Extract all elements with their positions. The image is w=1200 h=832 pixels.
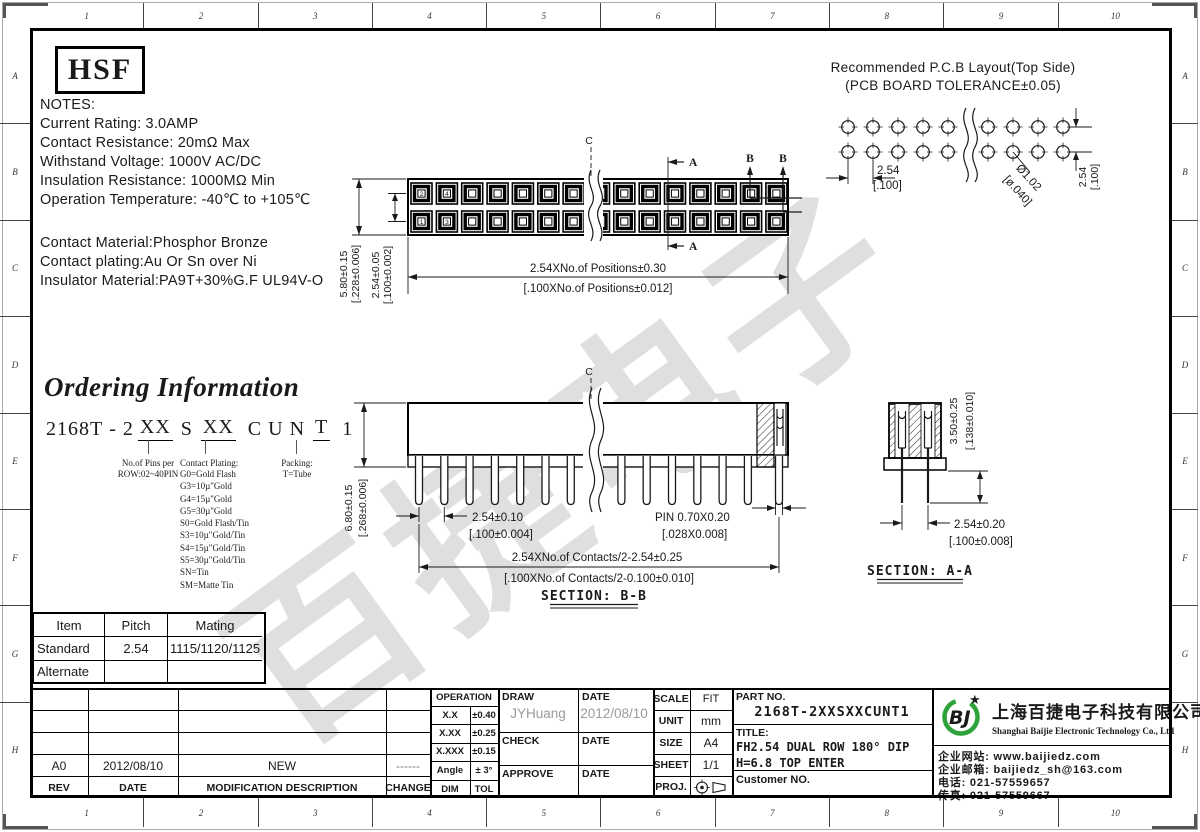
dim-pcb-row: 2.54 bbox=[1077, 167, 1089, 188]
approve-label: APPROVE bbox=[502, 768, 553, 780]
tol-line bbox=[432, 743, 498, 744]
grid-row-label: E bbox=[1172, 414, 1198, 510]
mating-cell: 1115/1120/1125 bbox=[167, 636, 262, 660]
grid-col-label: 4 bbox=[373, 3, 487, 28]
grid-labels-top: 12345678910 bbox=[30, 3, 1172, 28]
grid-col-label: 4 bbox=[373, 798, 487, 827]
tol-line bbox=[432, 761, 498, 762]
size-value: A4 bbox=[704, 736, 719, 750]
dim-bb-pin-inch: [.028X0.008] bbox=[662, 529, 727, 541]
grid-col-label: 7 bbox=[716, 3, 830, 28]
rev-line bbox=[386, 688, 387, 798]
rev-line bbox=[178, 688, 179, 798]
title-label: TITLE: bbox=[736, 727, 769, 739]
projection-symbol-icon bbox=[694, 779, 728, 796]
rev-line bbox=[30, 776, 430, 777]
rev-entry-rev: A0 bbox=[52, 759, 67, 773]
tol-line bbox=[432, 724, 498, 725]
grid-col-label: 8 bbox=[830, 3, 944, 28]
rev-header: DATE bbox=[119, 782, 147, 794]
grid-col-label: 3 bbox=[259, 3, 373, 28]
section-b-label: B bbox=[779, 153, 787, 165]
tol-cell: Angle bbox=[437, 765, 463, 776]
grid-row-label: E bbox=[0, 414, 30, 510]
grid-labels-left: ABCDEFGH bbox=[0, 28, 30, 798]
grid-col-label: 10 bbox=[1059, 798, 1172, 827]
sheet-label: SHEET bbox=[653, 759, 688, 771]
pin-number: 4 bbox=[445, 191, 449, 198]
part-seg: N bbox=[290, 418, 305, 441]
dim-bb-height-inch: [.268±0.006] bbox=[357, 479, 369, 537]
info-line bbox=[653, 732, 732, 733]
grid-row-label: G bbox=[1172, 606, 1198, 702]
titleblock-line bbox=[653, 688, 655, 798]
part-seg: - bbox=[109, 418, 117, 441]
draw-date-value: 2012/08/10 bbox=[580, 706, 648, 721]
tol-cell: X.X bbox=[442, 710, 457, 721]
grid-col-label: 3 bbox=[259, 798, 373, 827]
notes-block: NOTES:Current Rating: 3.0AMPContact Resi… bbox=[40, 96, 310, 210]
rev-line bbox=[88, 688, 89, 798]
grid-col-label: 2 bbox=[144, 3, 258, 28]
dim-bb-span: 2.54XNo.of Contacts/2-2.54±0.25 bbox=[512, 552, 683, 564]
note-line: Insulation Resistance: 1000MΩ Min bbox=[40, 172, 310, 191]
dim-pcb-pitch: 2.54 bbox=[877, 165, 900, 177]
grid-col-label: 6 bbox=[601, 3, 715, 28]
section-b-label: B bbox=[746, 153, 754, 165]
packing-option: T=Tube bbox=[268, 469, 326, 480]
centerline-label: C bbox=[585, 135, 593, 147]
tol-cell: X.XX bbox=[439, 728, 461, 739]
plating-option: S5=30µ"Gold/Tin bbox=[180, 555, 249, 566]
rev-entry-desc: NEW bbox=[268, 759, 296, 773]
section-a-label: A bbox=[689, 241, 698, 253]
pcb-layout-title: Recommended P.C.B Layout(Top Side) bbox=[831, 60, 1076, 75]
dim-pcb-row-inch: [.100] bbox=[1089, 164, 1101, 190]
rev-line bbox=[30, 754, 430, 755]
grid-col-label: 9 bbox=[944, 798, 1058, 827]
material-line: Contact plating:Au Or Sn over Ni bbox=[40, 253, 323, 272]
dim-bb-height: 6.80±0.15 bbox=[343, 485, 355, 532]
plating-option: G5=30µ"Gold bbox=[180, 506, 249, 517]
appr-line bbox=[498, 765, 653, 766]
pcb-layout-subtitle: (PCB BOARD TOLERANCE±0.05) bbox=[845, 78, 1061, 93]
title-line2: H=6.8 TOP ENTER bbox=[736, 756, 844, 770]
plating-option: S4=15µ"Gold/Tin bbox=[180, 543, 249, 554]
part-seg: 2168T bbox=[46, 418, 103, 441]
titleblock-line bbox=[732, 688, 734, 798]
section-a-label: A bbox=[689, 157, 698, 169]
info-line bbox=[653, 710, 732, 711]
note-line: NOTES: bbox=[40, 96, 310, 115]
grid-col-label: 10 bbox=[1059, 3, 1172, 28]
plating-option: S3=10µ"Gold/Tin bbox=[180, 530, 249, 541]
grid-col-label: 5 bbox=[487, 3, 601, 28]
grid-col-label: 5 bbox=[487, 798, 601, 827]
mating-header: Mating bbox=[167, 614, 262, 636]
section-aa-label: SECTION: A-A bbox=[867, 564, 973, 579]
dim-pcb-pitch-inch: [.100] bbox=[873, 180, 902, 192]
grid-row-label: H bbox=[0, 703, 30, 798]
rev-entry-date: 2012/08/10 bbox=[103, 759, 163, 773]
customer-no-label: Customer NO. bbox=[736, 774, 810, 786]
pin-number: 2 bbox=[420, 191, 424, 198]
company-line bbox=[932, 745, 1172, 746]
dim-length: 2.54XNo.of Positions±0.30 bbox=[530, 263, 666, 275]
callout-tick bbox=[296, 440, 297, 454]
plating-option: SN=Tin bbox=[180, 567, 249, 578]
plating-option: G0=Gold Flash bbox=[180, 469, 249, 480]
part-no-value: 2168T-2XXSXXCUNT1 bbox=[754, 704, 909, 720]
dim-length-inch: [.100XNo.of Positions±0.012] bbox=[524, 283, 673, 295]
dim-aa-height-inch: [.138±0.010] bbox=[964, 392, 976, 450]
grid-row-label: A bbox=[1172, 28, 1198, 124]
title-line1: FH2.54 DUAL ROW 180° DIP bbox=[736, 740, 909, 754]
ordering-title: Ordering Information bbox=[44, 372, 299, 403]
part-line bbox=[732, 724, 932, 725]
tol-cell: ±0.15 bbox=[472, 746, 496, 757]
tol-cell: DIM bbox=[441, 784, 458, 795]
section-bb-label: SECTION: B-B bbox=[541, 589, 647, 604]
note-line: Current Rating: 3.0AMP bbox=[40, 115, 310, 134]
top-view-drawing: 2 4 1 3 C A A B B 5.80±0.15 [.228±0.006]… bbox=[338, 128, 820, 304]
centerline-label: C bbox=[585, 366, 593, 378]
grid-labels-bottom: 12345678910 bbox=[30, 798, 1172, 827]
tol-cell: X.XXX bbox=[436, 746, 464, 757]
grid-col-label: 1 bbox=[30, 798, 144, 827]
dim-aa-height: 3.50±0.25 bbox=[948, 398, 960, 445]
mating-cell: Alternate bbox=[34, 660, 104, 682]
grid-row-label: C bbox=[1172, 221, 1198, 317]
draw-signature: JYHuang bbox=[510, 706, 566, 721]
rev-header: REV bbox=[48, 782, 70, 794]
mating-table: Item Pitch Mating Standard 2.54 1115/112… bbox=[32, 612, 266, 684]
hsf-logo: HSF bbox=[55, 46, 145, 94]
tol-title: OPERATION bbox=[436, 692, 492, 703]
mating-cell: 2.54 bbox=[104, 636, 167, 660]
sheet-value: 1/1 bbox=[703, 758, 720, 772]
appr-line bbox=[578, 688, 579, 798]
company-name-cn: 上海百捷电子科技有限公司 bbox=[992, 698, 1200, 723]
draw-label: DRAW bbox=[502, 691, 534, 703]
plating-title: Contact Plating: bbox=[180, 458, 249, 469]
rev-entry-change: ------ bbox=[396, 759, 420, 773]
grid-col-label: 7 bbox=[716, 798, 830, 827]
pin-number: 1 bbox=[420, 219, 424, 226]
appr-line bbox=[498, 732, 653, 733]
size-label: SIZE bbox=[659, 737, 682, 749]
dim-aa-pitch-inch: [.100±0.008] bbox=[949, 536, 1013, 548]
rev-header: CHANGE bbox=[385, 782, 431, 794]
pcb-layout-drawing: 2.54 [.100] Ø1.02 [ø.040] 2.54 [.100] bbox=[793, 100, 1123, 210]
titleblock-line bbox=[932, 688, 934, 798]
section-bb-drawing: C 6.80±0.15 [.268±0.006] 2.54±0.10 [.100… bbox=[336, 356, 820, 614]
grid-row-label: H bbox=[1172, 703, 1198, 798]
tol-line bbox=[470, 706, 471, 798]
grid-row-label: A bbox=[0, 28, 30, 124]
tol-cell: ± 3° bbox=[476, 765, 493, 776]
tol-cell: ±0.25 bbox=[472, 728, 496, 739]
part-no-label: PART NO. bbox=[736, 691, 785, 703]
plating-callout: Contact Plating: G0=Gold FlashG3=10µ"Gol… bbox=[180, 458, 249, 592]
packing-callout: Packing: T=Tube bbox=[268, 458, 326, 480]
plating-option: S0=Gold Flash/Tin bbox=[180, 518, 249, 529]
note-line: Operation Temperature: -40℃ to +105℃ bbox=[40, 191, 310, 210]
tol-line bbox=[432, 780, 498, 781]
plating-option: SM=Matte Tin bbox=[180, 580, 249, 591]
unit-value: mm bbox=[701, 714, 721, 728]
part-seg-packing: T bbox=[313, 416, 330, 441]
dim-aa-pitch: 2.54±0.20 bbox=[954, 519, 1005, 531]
part-seg: U bbox=[268, 418, 283, 441]
date-label: DATE bbox=[582, 768, 610, 780]
mating-cell bbox=[104, 660, 167, 682]
note-line: Withstand Voltage: 1000V AC/DC bbox=[40, 153, 310, 172]
date-label: DATE bbox=[582, 691, 610, 703]
grid-col-label: 9 bbox=[944, 3, 1058, 28]
part-seg: 2 bbox=[123, 418, 134, 441]
material-line: Contact Material:Phosphor Bronze bbox=[40, 234, 323, 253]
titleblock-line bbox=[30, 688, 1172, 690]
rev-line bbox=[30, 732, 430, 733]
mating-header: Item bbox=[34, 614, 104, 636]
grid-row-label: F bbox=[1172, 510, 1198, 606]
rev-line bbox=[30, 710, 430, 711]
datasheet-page: 百捷电子 12345678910 12345678910 ABCDEFGH AB… bbox=[0, 0, 1200, 832]
grid-col-label: 6 bbox=[601, 798, 715, 827]
part-seg: C bbox=[248, 418, 262, 441]
plating-option: G3=10µ"Gold bbox=[180, 481, 249, 492]
scale-value: FIT bbox=[703, 693, 720, 705]
scale-label: SCALE bbox=[653, 693, 689, 705]
material-line: Insulator Material:PA9T+30%G.F UL94V-O bbox=[40, 272, 323, 291]
part-seg-plating: XX bbox=[201, 416, 236, 441]
ordering-part-number: 2168T - 2 XX S XX C U N T 1 bbox=[46, 416, 353, 441]
unit-label: UNIT bbox=[659, 715, 684, 727]
callout-tick bbox=[205, 440, 206, 454]
company-name-en: Shanghai Baijie Electronic Technology Co… bbox=[992, 726, 1174, 736]
part-seg: S bbox=[181, 418, 193, 441]
dim-bb-span-inch: [.100XNo.of Contacts/2-0.100±0.010] bbox=[504, 573, 694, 585]
tol-line bbox=[432, 706, 498, 707]
mating-cell: Standard bbox=[34, 636, 104, 660]
dim-height-inch: [.228±0.006] bbox=[350, 245, 362, 303]
dim-row-pitch-inch: [.100±0.002] bbox=[382, 246, 394, 304]
company-logo-icon: BJ ★ bbox=[936, 690, 990, 742]
date-label: DATE bbox=[582, 735, 610, 747]
grid-row-label: D bbox=[1172, 317, 1198, 413]
part-seg-pins: XX bbox=[138, 416, 173, 441]
grid-row-label: B bbox=[0, 124, 30, 220]
grid-col-label: 8 bbox=[830, 798, 944, 827]
hsf-logo-text: HSF bbox=[68, 53, 132, 87]
grid-row-label: B bbox=[1172, 124, 1198, 220]
materials-block: Contact Material:Phosphor BronzeContact … bbox=[40, 234, 323, 291]
dim-bb-pitch: 2.54±0.10 bbox=[472, 512, 523, 524]
grid-col-label: 2 bbox=[144, 798, 258, 827]
logo-bj-text: BJ bbox=[949, 707, 971, 729]
tol-cell: TOL bbox=[475, 784, 494, 795]
grid-labels-right: ABCDEFGH bbox=[1172, 28, 1198, 798]
dim-bb-pitch-inch: [.100±0.004] bbox=[469, 529, 533, 541]
packing-title: Packing: bbox=[268, 458, 326, 469]
grid-row-label: F bbox=[0, 510, 30, 606]
grid-row-label: C bbox=[0, 221, 30, 317]
section-aa-drawing: 3.50±0.25 [.138±0.010] 2.54±0.20 [.100±0… bbox=[853, 376, 1045, 594]
tol-cell: ±0.40 bbox=[472, 710, 496, 721]
mating-cell bbox=[167, 660, 262, 682]
dim-bb-pin: PIN 0.70X0.20 bbox=[655, 512, 730, 524]
logo-star-icon: ★ bbox=[969, 692, 981, 707]
dim-height: 5.80±0.15 bbox=[338, 251, 350, 298]
grid-col-label: 1 bbox=[30, 3, 144, 28]
info-line bbox=[653, 776, 732, 777]
info-line bbox=[690, 688, 691, 798]
titleblock-line bbox=[498, 688, 500, 798]
part-line bbox=[732, 770, 932, 771]
rev-header: MODIFICATION DESCRIPTION bbox=[207, 782, 358, 794]
mating-header: Pitch bbox=[104, 614, 167, 636]
plating-option: G4=15µ"Gold bbox=[180, 494, 249, 505]
proj-label: PROJ. bbox=[655, 781, 687, 793]
grid-row-label: G bbox=[0, 606, 30, 702]
check-label: CHECK bbox=[502, 735, 539, 747]
pin-number: 3 bbox=[445, 219, 449, 226]
callout-tick bbox=[148, 440, 149, 454]
info-line bbox=[653, 754, 732, 755]
note-line: Contact Resistance: 20mΩ Max bbox=[40, 134, 310, 153]
dim-row-pitch: 2.54±0.05 bbox=[370, 252, 382, 299]
grid-row-label: D bbox=[0, 317, 30, 413]
